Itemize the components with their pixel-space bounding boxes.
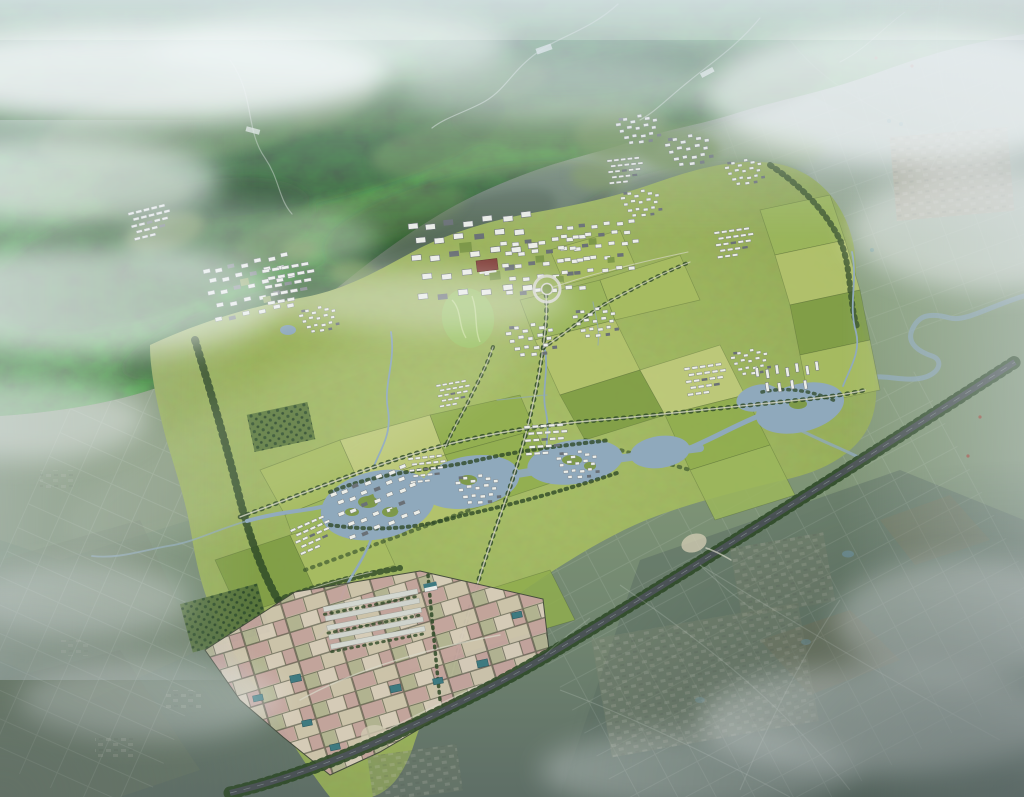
- top-white-edge: [0, 0, 1024, 40]
- corner-shadow-bl: [0, 560, 300, 797]
- aerial-rendering: [0, 0, 1024, 797]
- corner-shadow-br: [560, 460, 1024, 797]
- rendering-canvas: [0, 0, 1024, 797]
